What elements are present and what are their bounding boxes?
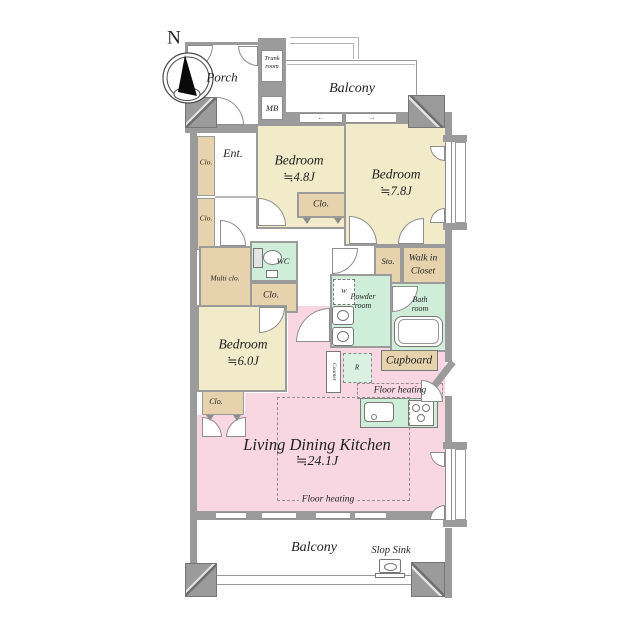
- burner-icon: [417, 414, 425, 422]
- room-label-bedroom-78: Bedroom: [372, 167, 421, 181]
- bay-window-cap: [443, 223, 467, 230]
- burner-icon: [422, 404, 430, 412]
- window: [445, 449, 452, 520]
- slide-arrow-icon: →: [369, 115, 376, 122]
- room-label-closet: Clo.: [200, 158, 213, 166]
- room-label-trunk-1: Trunk: [264, 56, 279, 63]
- door-arc: [238, 46, 258, 66]
- window: [355, 512, 386, 519]
- washing-machine-label: W: [341, 289, 346, 296]
- hatched-corner-block: [408, 95, 445, 128]
- closet-entry-2: [197, 198, 215, 250]
- hinge-mark: [303, 218, 311, 224]
- floor-plan: ← → N: [0, 0, 640, 640]
- room-label-bath-1: Bath: [412, 296, 427, 304]
- hatched-corner-block: [411, 562, 445, 597]
- sink-icon: [332, 306, 354, 325]
- sink-icon: [332, 327, 354, 346]
- room-label-multi-closet: Multi clo.: [210, 274, 239, 282]
- refrigerator-label: R: [355, 365, 359, 372]
- basin-icon: [337, 331, 349, 342]
- room-label-porch: Porch: [206, 71, 237, 84]
- compass-north-label: N: [167, 29, 181, 48]
- hatched-corner-block: [185, 563, 217, 597]
- room-label-wic-2: Closet: [411, 267, 435, 277]
- room-label-balcony-top: Balcony: [329, 82, 375, 96]
- bay-window-cap: [443, 442, 467, 449]
- room-label-trunk-2: room: [265, 64, 278, 71]
- slop-sink-basin: [384, 563, 397, 571]
- slop-sink-base: [375, 573, 405, 578]
- floor-heating-label: Floor heating: [299, 495, 358, 505]
- slop-sink-icon: [379, 559, 401, 573]
- room-label-wc: WC: [277, 257, 290, 266]
- toilet-paper-icon: [266, 270, 278, 278]
- toilet-tank-icon: [253, 248, 263, 268]
- window: [445, 142, 452, 223]
- room-label-closet: Clo.: [209, 398, 223, 406]
- room-label-closet: Clo.: [263, 291, 279, 301]
- room-size-bedroom-48: ≒4.8J: [283, 171, 315, 184]
- room-size-bedroom-78: ≒7.8J: [380, 185, 412, 198]
- cupboard-label: Cupboard: [386, 355, 432, 367]
- window: [262, 512, 296, 519]
- balcony-railing-line: [287, 64, 415, 65]
- room-label-closet: Clo.: [313, 200, 329, 210]
- stove-icon: [408, 400, 434, 426]
- room-label-ldk: Living Dining Kitchen: [243, 437, 391, 454]
- counter-label: Counter: [330, 363, 336, 381]
- entrance-step-line: [215, 196, 257, 198]
- bay-window-outer: [455, 142, 466, 223]
- room-label-storage: Sto.: [382, 257, 395, 266]
- door-arc: [332, 248, 358, 274]
- room-size-bedroom-60: ≒6.0J: [227, 355, 259, 368]
- door-arc: [216, 97, 244, 125]
- bathtub-inner: [398, 319, 439, 344]
- room-label-closet: Clo.: [200, 214, 213, 222]
- bay-window-outer: [455, 449, 466, 520]
- wall: [190, 124, 197, 564]
- room-label-powder-1: Powder: [351, 293, 376, 301]
- wall: [445, 396, 452, 442]
- bay-window-cap: [443, 520, 467, 527]
- slide-arrow-icon: ←: [318, 115, 325, 122]
- room-label-bedroom-48: Bedroom: [275, 153, 324, 167]
- bathtub-icon: [394, 316, 443, 347]
- slop-sink-label: Slop Sink: [371, 546, 410, 557]
- room-label-wic-1: Walk in: [409, 254, 437, 264]
- burner-icon: [412, 404, 420, 412]
- basin-icon: [337, 310, 349, 321]
- hinge-mark: [233, 415, 241, 421]
- room-label-mb: MB: [266, 104, 278, 113]
- window: [316, 512, 350, 519]
- wall: [445, 528, 452, 598]
- boundary-line: [290, 43, 354, 59]
- room-label-entrance: Ent.: [223, 147, 243, 159]
- hinge-mark: [206, 415, 214, 421]
- hinge-mark: [334, 218, 342, 224]
- bay-window-cap: [443, 135, 467, 142]
- door-arc: [220, 220, 246, 246]
- room-label-bedroom-60: Bedroom: [219, 337, 268, 351]
- window: [216, 512, 246, 519]
- floor-heating-label: Floor heating: [374, 386, 427, 396]
- room-label-bath-2: room: [412, 305, 429, 313]
- room-label-powder-2: room: [355, 302, 372, 310]
- room-size-ldk: ≒24.1J: [296, 455, 338, 469]
- room-label-balcony-bottom: Balcony: [291, 541, 337, 555]
